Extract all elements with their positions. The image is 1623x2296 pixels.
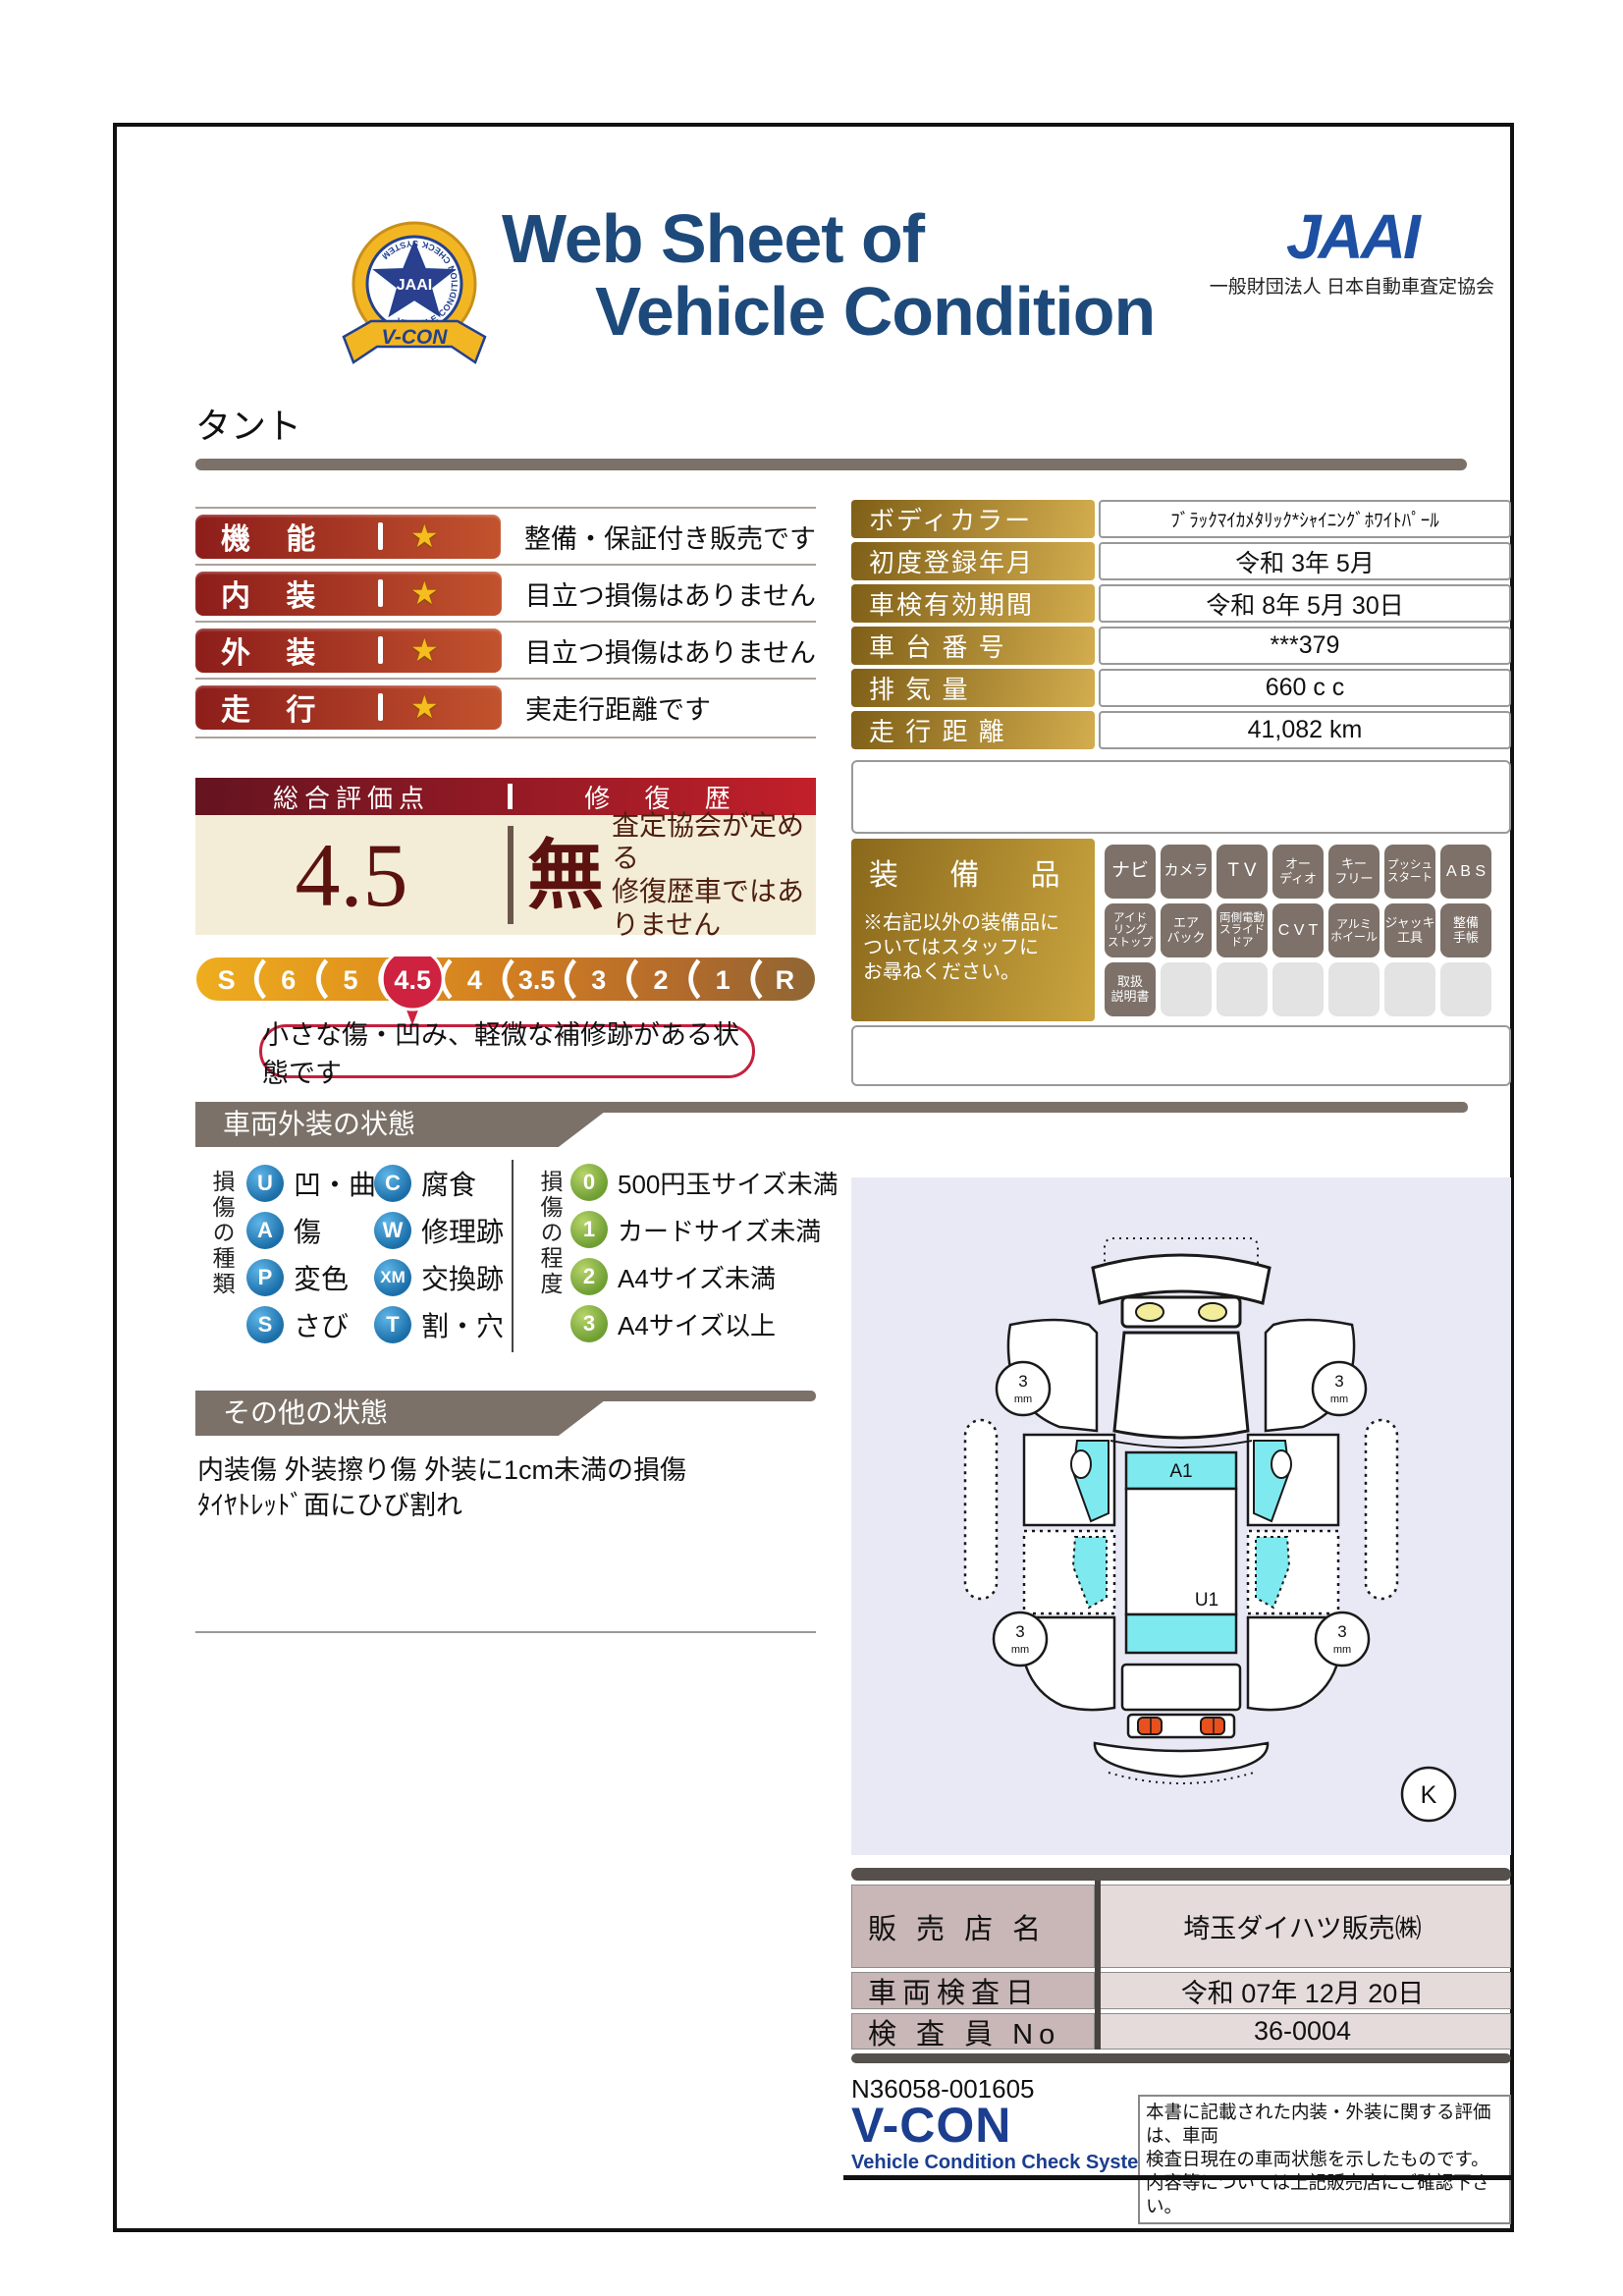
org-name: 一般財団法人 日本自動車査定協会 (1210, 272, 1494, 299)
pill-divider (378, 579, 383, 607)
damage-level-label: A4サイズ以上 (618, 1306, 776, 1342)
equipment-badge-empty (1384, 962, 1435, 1016)
damage-type-label: 腐食 (421, 1164, 476, 1203)
damage-type-code: W (374, 1212, 411, 1249)
info-row-mileage: 走 行 距 離 41,082 km (851, 711, 1511, 749)
sheet-frame: VEHICLE CONDITION CHECK SYSTEM JAAI V-CO… (113, 123, 1514, 2232)
headlight-right-icon (1199, 1303, 1226, 1321)
selected-score-text: 4.5 (394, 965, 431, 995)
rating-label: 内 装 (195, 572, 378, 615)
other-condition-line2: ﾀｲﾔﾄﾚｯﾄﾞ面にひび割れ (197, 1488, 686, 1523)
rating-row-exterior: 外 装 ★ 目立つ損傷はありません (195, 621, 816, 678)
damage-type-label: 修理跡 (421, 1211, 504, 1250)
tread-unit-fr: mm (1330, 1394, 1348, 1405)
damage-type-xm: XM 交換跡 (374, 1258, 504, 1297)
legend-divider (512, 1160, 514, 1352)
exterior-section-title: 車両外装の状態 (195, 1102, 618, 1147)
scale-label-3: 3 (591, 965, 606, 995)
repair-history-block: 無 査定協会が定める 修復歴車ではありません (514, 815, 816, 935)
equipment-grid: ナビ カメラ T V オー ディオ キー フリー プッシュ スタート A B S… (1105, 845, 1507, 1016)
info-row-first-registration: 初度登録年月 令和 3年 5月 (851, 542, 1511, 580)
equipment-badge: 両側電動 スライド ドア (1217, 903, 1268, 957)
rear-bumper (1095, 1743, 1268, 1777)
damage-type-s: S さび (246, 1305, 349, 1344)
info-label: 排 気 量 (851, 669, 1095, 707)
damage-level-code: 0 (570, 1164, 608, 1201)
star-icon: ★ (410, 518, 439, 555)
dealer-table: 販 売 店 名 埼玉ダイハツ販売㈱ 車両検査日 令和 07年 12月 20日 検… (851, 1868, 1511, 2063)
info-row-displacement: 排 気 量 660 c c (851, 669, 1511, 707)
dealer-table-bottom-bar (851, 2053, 1511, 2063)
side-molding (965, 1420, 997, 1599)
vehicle-name: タント (195, 398, 301, 449)
dealer-row-inspector-no: 検 査 員 No 36-0004 (851, 2013, 1511, 2050)
equipment-badge: オー ディオ (1272, 845, 1324, 899)
overall-score-title: 総合評価点 (195, 779, 508, 815)
other-section-hr (195, 1631, 816, 1633)
tread-unit-fl: mm (1014, 1394, 1032, 1405)
headlight-left-icon (1136, 1303, 1163, 1321)
tread-value-fr: 3 (1334, 1372, 1343, 1391)
car-diagram-svg: A1 U1 3 mm 3 mm 3 mm 3 mm K (851, 1177, 1511, 1855)
equipment-badge: A B S (1440, 845, 1491, 899)
rating-label: 外 装 (195, 629, 378, 672)
dealer-label: 検 査 員 No (851, 2013, 1095, 2050)
equipment-badge-empty (1217, 962, 1268, 1016)
equipment-badge: アイド リング ストップ (1105, 903, 1156, 957)
damage-type-label: 割・穴 (421, 1305, 504, 1344)
windshield (1114, 1333, 1248, 1438)
badge-ribbon-text: V-CON (382, 326, 449, 349)
vcon-logo: V-CON (851, 2097, 1011, 2154)
tread-value-fl: 3 (1018, 1372, 1027, 1391)
scale-label-s: S (218, 965, 236, 995)
equipment-badge-empty (1161, 962, 1212, 1016)
taillight-left-icon (1138, 1718, 1162, 1734)
equipment-note: ※右記以外の装備品に ついてはスタッフに お尋ねください。 (851, 894, 1095, 985)
info-value: ﾌﾞﾗｯｸﾏｲｶﾒﾀﾘｯｸ*ｼｬｲﾆﾝｸﾞﾎﾜｲﾄﾊﾟｰﾙ (1099, 500, 1511, 538)
footer-divider (843, 2175, 1511, 2180)
damage-type-code: A (246, 1212, 284, 1249)
rating-label: 機 能 (195, 515, 378, 558)
tread-unit-rl: mm (1011, 1644, 1029, 1656)
taillight-right-icon (1201, 1718, 1224, 1734)
equipment-badge: キー フリー (1328, 845, 1380, 899)
overall-score-value: 4.5 (195, 815, 508, 935)
page-title-line1: Web Sheet of (502, 200, 924, 277)
damage-type-label: 凹・曲 (294, 1164, 376, 1203)
rating-pill: 外 装 ★ (195, 629, 502, 673)
equipment-badge-empty (1328, 962, 1380, 1016)
damage-type-axis: 損傷の種類 (205, 1170, 239, 1366)
info-label: ボディカラー (851, 500, 1095, 538)
dealer-label: 販 売 店 名 (851, 1885, 1095, 1968)
damage-type-u: U 凹・曲 (246, 1164, 376, 1203)
damage-type-code: P (246, 1259, 284, 1296)
info-label: 初度登録年月 (851, 542, 1095, 580)
info-label: 走 行 距 離 (851, 711, 1095, 749)
equipment-badge: ジャッキ 工具 (1384, 903, 1435, 957)
tread-unit-rr: mm (1333, 1644, 1351, 1656)
equipment-badge: エア バック (1161, 903, 1212, 957)
pill-divider (378, 693, 383, 721)
hood-damage-label: A1 (1169, 1461, 1192, 1482)
rating-comment: 目立つ損傷はありません (525, 631, 816, 670)
equipment-title: 装 備 品 (851, 839, 1095, 894)
roof-panel (1126, 1489, 1236, 1614)
repair-flag: 無 (527, 837, 604, 913)
rating-comment: 実走行距離です (525, 688, 711, 727)
rating-bottom-line (195, 737, 816, 738)
pill-divider (378, 522, 383, 550)
jaai-logo: JAAI (1210, 205, 1494, 268)
tread-value-rr: 3 (1337, 1622, 1346, 1641)
dealer-row-inspection-date: 車両検査日 令和 07年 12月 20日 (851, 1972, 1511, 2009)
vcon-logo-subtitle: Vehicle Condition Check System (851, 2152, 1156, 2174)
damage-level-label: A4サイズ未満 (618, 1259, 776, 1295)
info-label: 車検有効期間 (851, 584, 1095, 623)
rating-comment: 整備・保証付き販売です (524, 518, 816, 556)
equipment-badge: カメラ (1161, 845, 1212, 899)
grade-letter: K (1421, 1781, 1437, 1809)
rating-row-mileage: 走 行 ★ 実走行距離です (195, 678, 816, 735)
dealer-label: 車両検査日 (851, 1972, 1095, 2009)
star-icon: ★ (410, 688, 439, 726)
damage-level-label: 500円玉サイズ未満 (618, 1165, 839, 1201)
scale-label-1: 1 (716, 965, 730, 995)
equipment-badge: アルミ ホイール (1328, 903, 1380, 957)
damage-level-label: カードサイズ未満 (618, 1212, 821, 1248)
rating-row-function: 機 能 ★ 整備・保証付き販売です (195, 507, 816, 564)
info-row-inspection-valid: 車検有効期間 令和 8年 5月 30日 (851, 584, 1511, 623)
equipment-badge: 整備 手帳 (1440, 903, 1491, 957)
page-title-line2: Vehicle Condition (595, 276, 1155, 349)
org-block: JAAI 一般財団法人 日本自動車査定協会 (1210, 205, 1494, 299)
damage-level-code: 3 (570, 1305, 608, 1342)
other-condition-line1: 内装傷 外装擦り傷 外装に1cm未満の損傷 (197, 1452, 686, 1488)
damage-level-3: 3 A4サイズ以上 (570, 1305, 776, 1342)
tailgate-panel (1122, 1665, 1240, 1710)
scale-label-2: 2 (653, 965, 668, 995)
star-icon: ★ (410, 574, 439, 612)
damage-type-code: C (374, 1165, 411, 1202)
damage-type-c: C 腐食 (374, 1164, 476, 1203)
equipment-badge: T V (1217, 845, 1268, 899)
damage-type-code: T (374, 1306, 411, 1343)
scale-label-5: 5 (343, 965, 357, 995)
damage-type-t: T 割・穴 (374, 1305, 504, 1344)
equipment-badge: 取扱 説明書 (1105, 962, 1156, 1016)
damage-type-code: XM (374, 1259, 411, 1296)
damage-type-a: A 傷 (246, 1211, 321, 1250)
equipment-badge-empty (1440, 962, 1491, 1016)
damage-type-label: さび (294, 1305, 349, 1344)
score-callout: 小さな傷・凹み、軽微な補修跡がある状態です (259, 1024, 755, 1078)
equipment-section: 装 備 品 ※右記以外の装備品に ついてはスタッフに お尋ねください。 ナビ カ… (851, 839, 1511, 1021)
info-row-body-color: ボディカラー ﾌﾞﾗｯｸﾏｲｶﾒﾀﾘｯｸ*ｼｬｲﾆﾝｸﾞﾎﾜｲﾄﾊﾟｰﾙ (851, 500, 1511, 538)
rating-pill: 走 行 ★ (195, 685, 502, 730)
damage-level-code: 2 (570, 1258, 608, 1295)
rating-pill: 機 能 ★ (195, 515, 501, 559)
page-title: Web Sheet of Vehicle Condition (502, 203, 1155, 348)
info-blank-box (851, 760, 1511, 834)
rating-row-interior: 内 装 ★ 目立つ損傷はありません (195, 564, 816, 621)
info-value: 令和 3年 5月 (1099, 542, 1511, 580)
equipment-badge: プッシュ スタート (1384, 845, 1435, 899)
equipment-badge: ナビ (1105, 845, 1156, 899)
cowl-line (1110, 1441, 1252, 1448)
car-damage-diagram: A1 U1 3 mm 3 mm 3 mm 3 mm K (851, 1177, 1511, 1855)
door-mirror (1071, 1450, 1091, 1478)
rear-window-panel (1126, 1614, 1236, 1653)
damage-level-axis: 損傷の程度 (533, 1170, 567, 1366)
dealer-table-divider (1095, 1881, 1101, 2050)
badge-star-text: JAAI (397, 277, 432, 294)
equipment-badge-empty (1272, 962, 1324, 1016)
damage-level-2: 2 A4サイズ未満 (570, 1258, 776, 1295)
damage-type-w: W 修理跡 (374, 1211, 504, 1250)
rating-pill: 内 装 ★ (195, 572, 502, 616)
scale-label-4: 4 (467, 965, 482, 995)
equipment-header-panel: 装 備 品 ※右記以外の装備品に ついてはスタッフに お尋ねください。 (851, 839, 1095, 1021)
dealer-table-top-bar (851, 1868, 1511, 1881)
star-icon: ★ (410, 631, 439, 669)
scale-label-r: R (776, 965, 795, 995)
title-divider-bar (195, 459, 1467, 470)
equipment-blank-box (851, 1025, 1511, 1086)
damage-type-label: 変色 (294, 1258, 349, 1297)
damage-level-0: 0 500円玉サイズ未満 (570, 1164, 839, 1201)
scale-label-3_5: 3.5 (518, 965, 556, 995)
rating-comment: 目立つ損傷はありません (525, 574, 816, 613)
damage-type-label: 交換跡 (421, 1258, 504, 1297)
vcon-badge-icon: VEHICLE CONDITION CHECK SYSTEM JAAI V-CO… (328, 213, 503, 382)
repair-note: 査定協会が定める 修復歴車ではありません (612, 809, 816, 941)
info-value: 660 c c (1099, 669, 1511, 707)
damage-type-code: S (246, 1306, 284, 1343)
info-value: ***379 (1099, 627, 1511, 665)
info-value: 41,082 km (1099, 711, 1511, 749)
dealer-value: 埼玉ダイハツ販売㈱ (1095, 1885, 1511, 1968)
damage-type-p: P 変色 (246, 1258, 349, 1297)
dealer-value: 令和 07年 12月 20日 (1095, 1972, 1511, 2009)
info-row-chassis-no: 車 台 番 号 ***379 (851, 627, 1511, 665)
tread-value-rl: 3 (1015, 1622, 1024, 1641)
damage-level-code: 1 (570, 1211, 608, 1248)
overall-score-body: 4.5 無 査定協会が定める 修復歴車ではありません (195, 815, 816, 935)
footer-note: 本書に記載された内装・外装に関する評価は、車両 検査日現在の車両状態を示したもの… (1138, 2095, 1511, 2224)
pill-divider (378, 636, 383, 664)
dealer-row-shop: 販 売 店 名 埼玉ダイハツ販売㈱ (851, 1885, 1511, 1968)
vehicle-condition-sheet: VEHICLE CONDITION CHECK SYSTEM JAAI V-CO… (0, 0, 1623, 2296)
damage-type-label: 傷 (294, 1211, 321, 1250)
equipment-badge: C V T (1272, 903, 1324, 957)
damage-type-code: U (246, 1165, 284, 1202)
roof-damage-label: U1 (1195, 1590, 1218, 1611)
damage-level-1: 1 カードサイズ未満 (570, 1211, 821, 1248)
scale-label-6: 6 (281, 965, 296, 995)
dealer-value: 36-0004 (1095, 2013, 1511, 2050)
info-value: 令和 8年 5月 30日 (1099, 584, 1511, 623)
info-label: 車 台 番 号 (851, 627, 1095, 665)
other-condition-text: 内装傷 外装擦り傷 外装に1cm未満の損傷 ﾀｲﾔﾄﾚｯﾄﾞ面にひび割れ (197, 1452, 686, 1524)
other-section-title: その他の状態 (195, 1391, 618, 1436)
rating-label: 走 行 (195, 685, 378, 729)
